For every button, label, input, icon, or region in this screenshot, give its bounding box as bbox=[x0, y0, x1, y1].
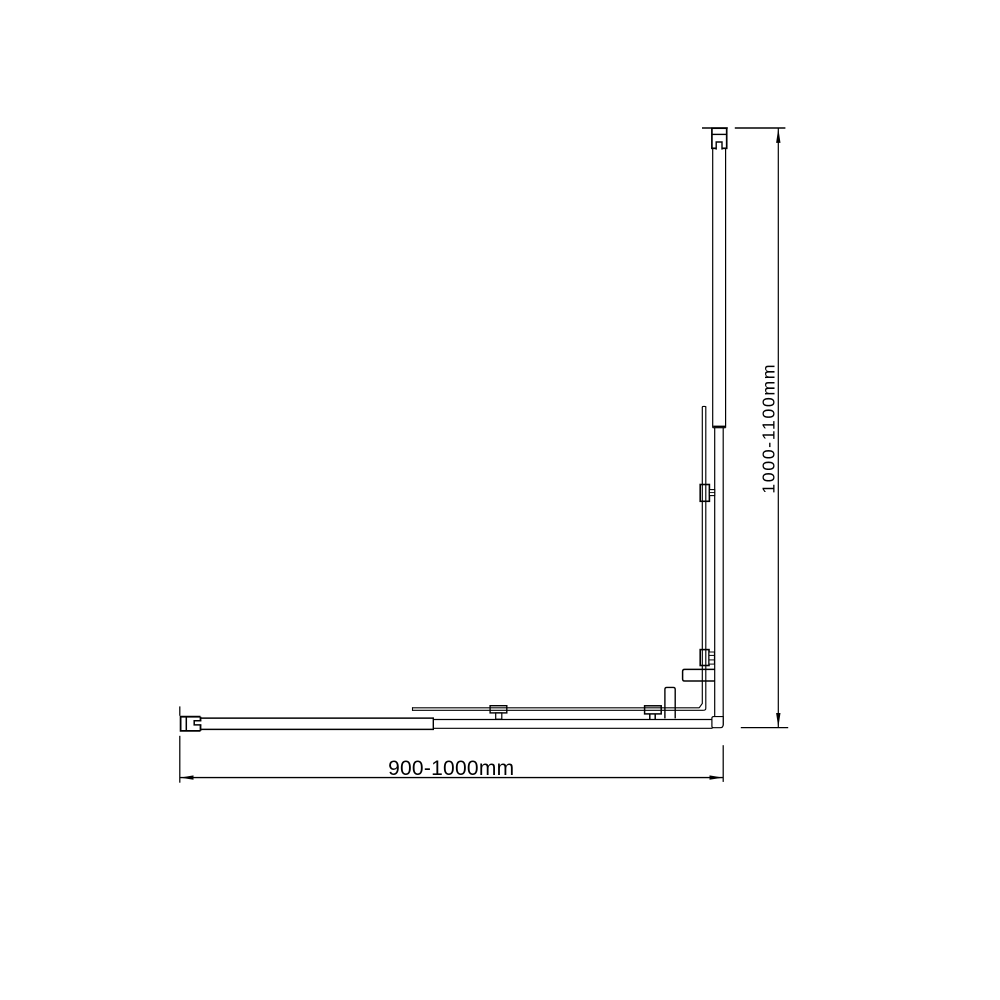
svg-text:900-1000mm: 900-1000mm bbox=[388, 757, 514, 780]
svg-text:1000-1100mm: 1000-1100mm bbox=[758, 363, 778, 494]
